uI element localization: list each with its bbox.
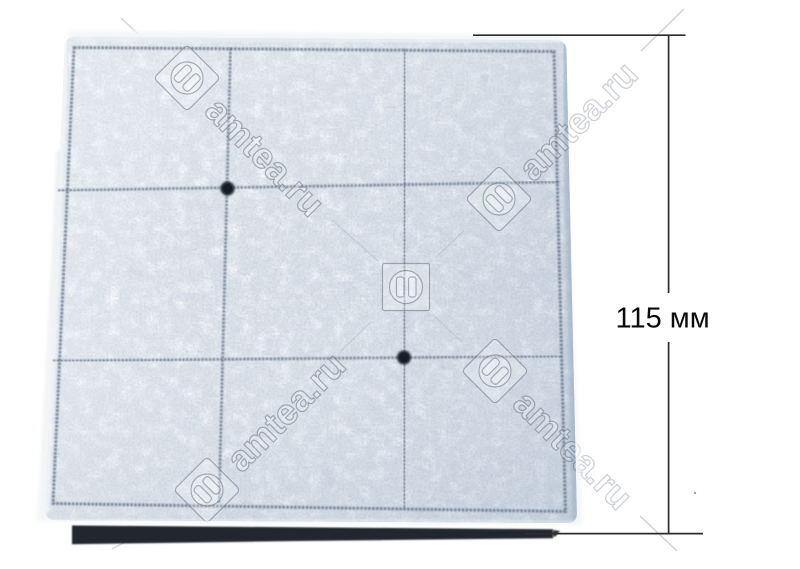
svg-text:115 мм: 115 мм — [616, 303, 710, 335]
